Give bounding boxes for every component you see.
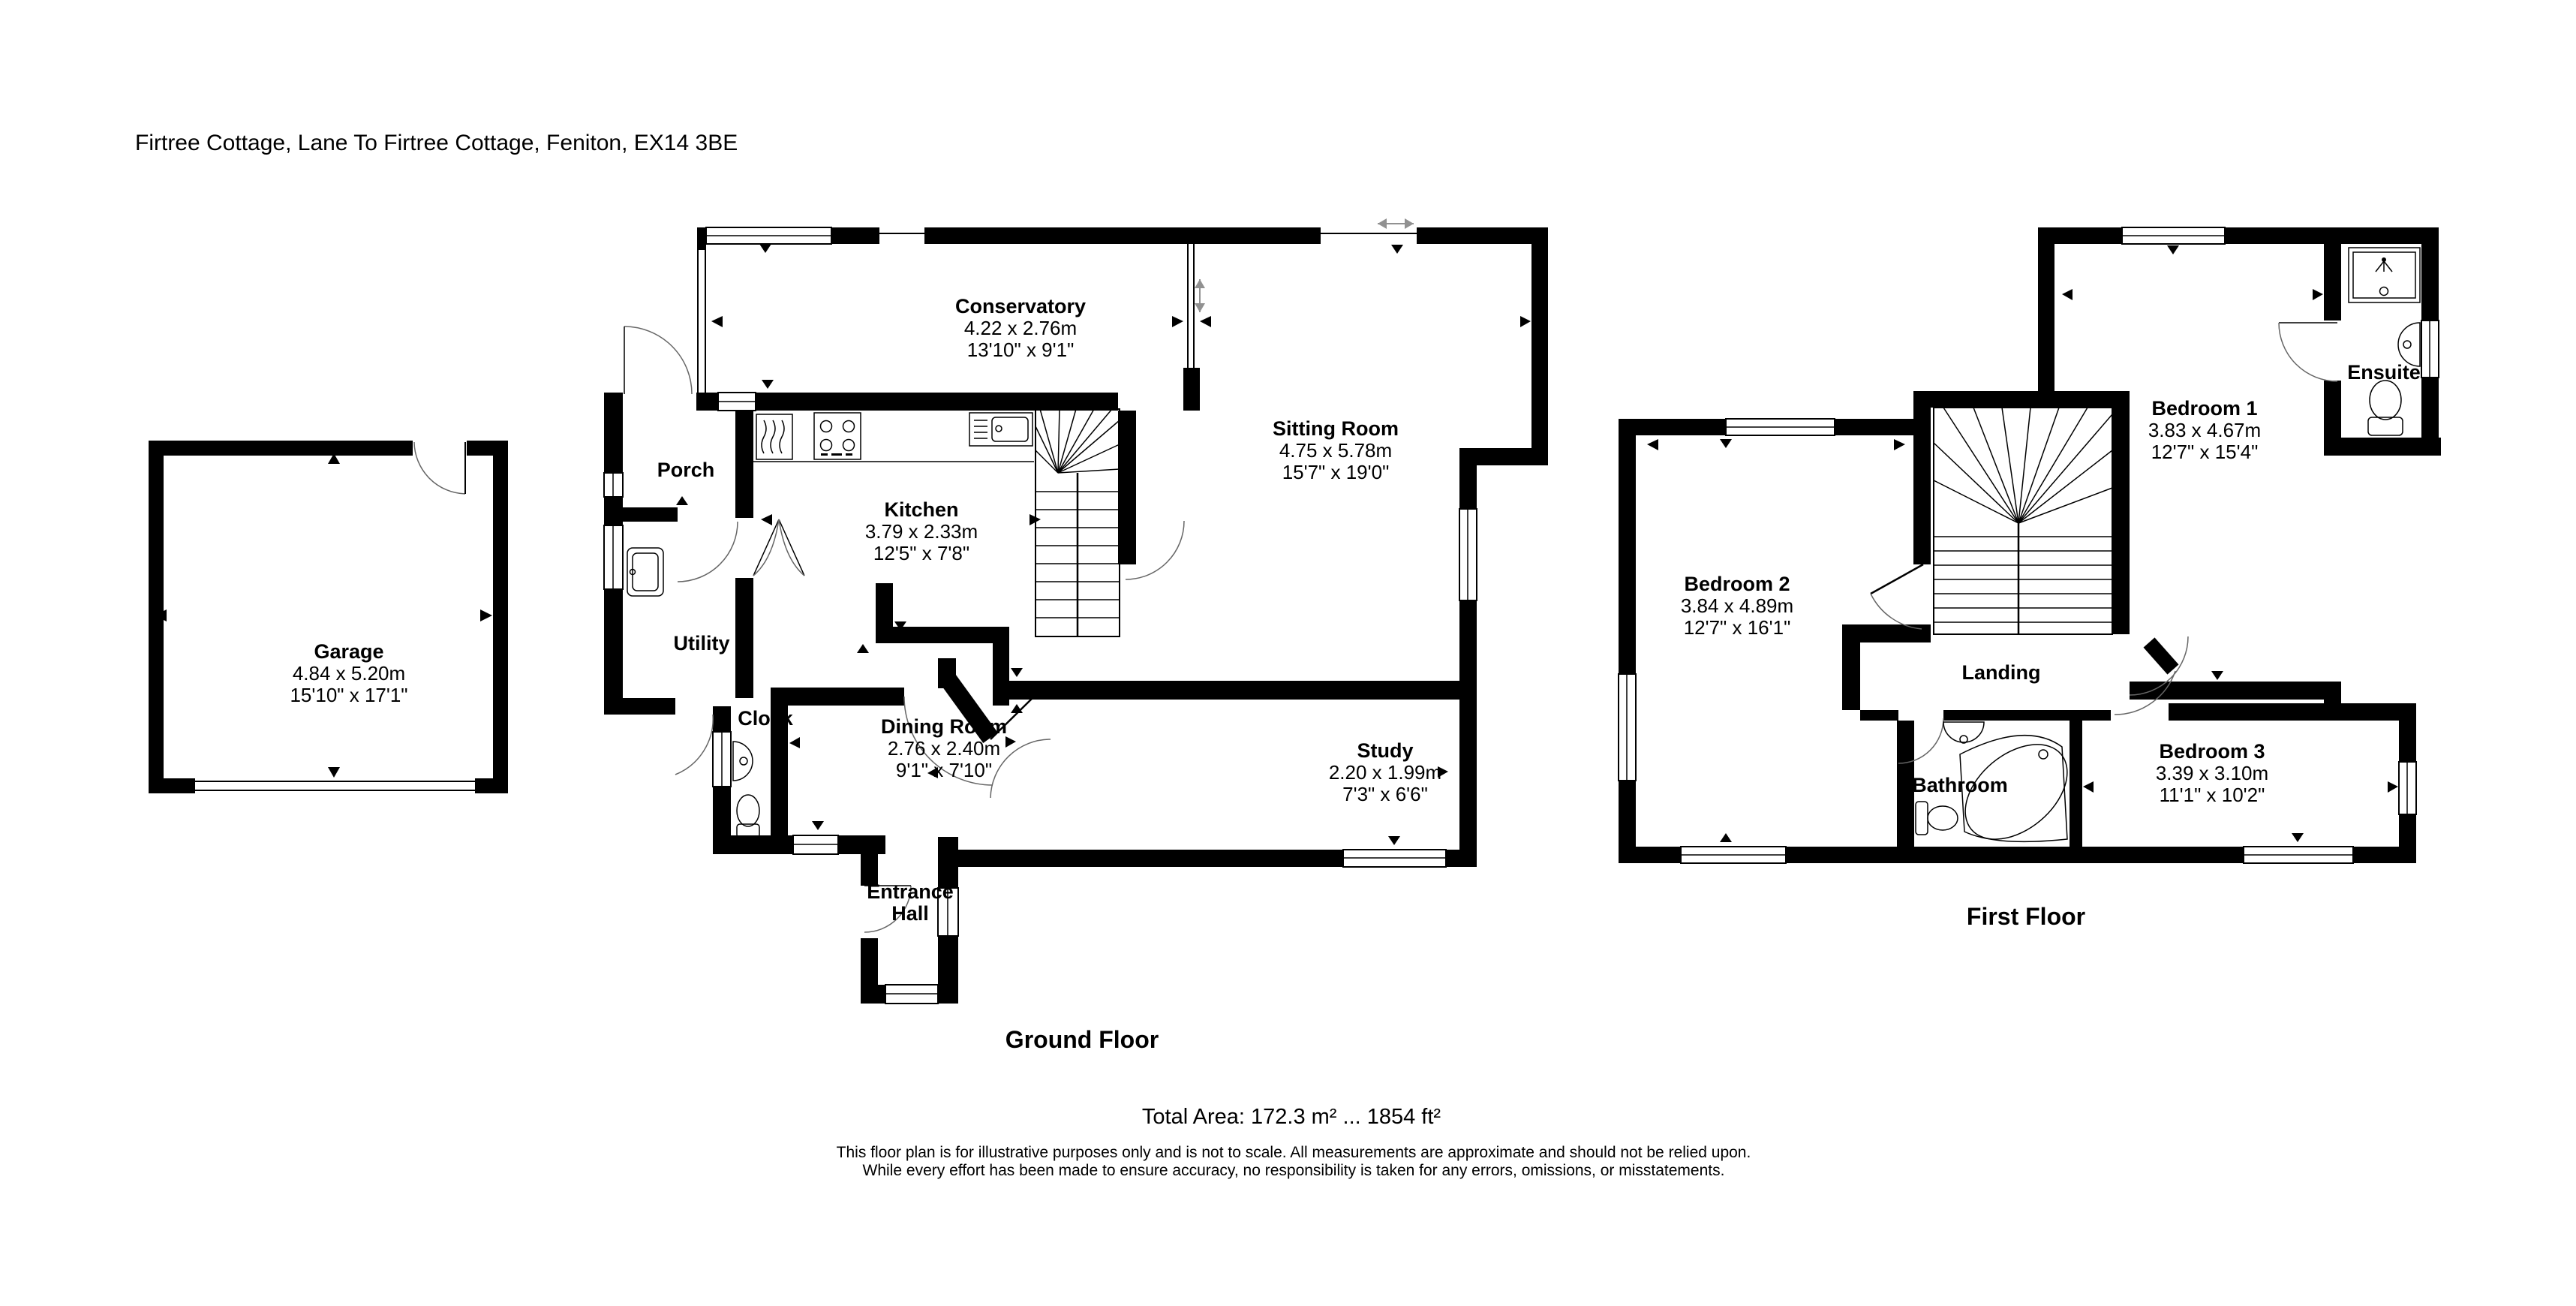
room-dim-metric: 4.84 x 5.20m [293,662,405,685]
landing-label: Landing [1962,661,2041,684]
room-dim-metric: 3.84 x 4.89m [1681,594,1793,617]
room-name: Bedroom 1 [2151,397,2257,420]
ensuite-sink-icon [2398,323,2420,366]
ensuite-toilet-icon [2368,381,2403,435]
room-name: Dining Room [881,715,1007,738]
window [706,227,831,244]
conservatory-glazing [698,233,1194,393]
window [713,732,731,787]
disclaimer-line1: This floor plan is for illustrative purp… [837,1144,1751,1161]
garage-walls [149,441,508,793]
room-name: Bedroom 2 [1684,573,1790,595]
window [885,985,938,1004]
stair-winders [1934,408,2112,523]
utility-cloak-door-arc [675,715,713,775]
room-dim-imperial: 13'10" x 9'1" [967,339,1075,361]
room-dim-metric: 2.76 x 2.40m [888,737,1000,760]
bedroom3-label: Bedroom 3 3.39 x 3.10m 11'1" x 10'2" [2156,740,2268,806]
cloak-toilet-icon [737,795,759,838]
bedroom2-label: Bedroom 2 3.84 x 4.89m 12'7" x 16'1" [1681,573,1793,639]
hob-icon [814,413,861,459]
room-dim-imperial: 9'1" x 7'10" [896,759,992,781]
garage-dim-arrows [155,453,492,778]
window [1681,847,1786,863]
conservatory-label: Conservatory 4.22 x 2.76m 13'10" x 9'1" [955,295,1086,361]
ensuite-door [2279,323,2337,381]
utility-sink-icon [627,548,663,596]
ground-floor-title: Ground Floor [1005,1026,1159,1053]
room-dim-metric: 4.22 x 2.76m [964,317,1077,339]
window [1459,509,1477,600]
sitting-room-label: Sitting Room 4.75 x 5.78m 15'7" x 19'0" [1273,417,1399,483]
porch-label: Porch [657,459,715,481]
window [1726,419,1835,435]
room-name-line1: Entrance [867,880,954,903]
oven-icon [756,414,792,459]
floorplan-canvas: Firtree Cottage, Lane To Firtree Cottage… [0,0,2576,1306]
room-dim-imperial: 15'7" x 19'0" [1282,461,1390,483]
bedroom2-door [1871,564,1923,629]
garage-door-arc [414,442,465,494]
first-floor-stairs [1934,408,2112,634]
stair-treads [1036,473,1120,636]
room-dim-imperial: 12'5" x 7'8" [873,542,969,564]
first-floor-dim-arrows [1647,245,2398,842]
bedroom3-door [2115,642,2175,715]
porch-utility-door-arc [678,522,738,582]
total-area: Total Area: 172.3 m² ... 1854 ft² [1142,1105,1441,1129]
room-dim-imperial: 12'7" x 15'4" [2151,441,2259,463]
window [793,835,838,854]
window [2421,320,2439,378]
room-name: Sitting Room [1273,417,1399,440]
room-name: Garage [314,640,383,663]
opening-width-arrow [1378,218,1414,229]
porch-entry-door-arc [624,326,692,394]
room-name: Conservatory [955,295,1086,317]
cloak-sink-icon [733,742,753,781]
ground-floor-walls [604,227,1548,1004]
room-dim-metric: 2.20 x 1.99m [1329,761,1441,784]
cloak-label: Cloak [738,707,794,730]
window [2399,762,2416,814]
room-dim-metric: 4.75 x 5.78m [1279,439,1392,462]
window [2244,847,2353,863]
ground-floor-stairs [1036,409,1120,636]
ensuite-label: Ensuite [2347,361,2421,384]
stair-winders [1036,409,1120,473]
room-name: Bedroom 3 [2159,740,2265,763]
study-label: Study 2.20 x 1.99m 7'3" x 6'6" [1329,739,1441,805]
room-dim-imperial: 15'10" x 17'1" [290,684,407,706]
bathroom-sink-icon [1943,722,1984,743]
room-dim-metric: 3.83 x 4.67m [2148,419,2261,441]
first-floor-title: First Floor [1967,903,2085,930]
dining-room-label: Dining Room 2.76 x 2.40m 9'1" x 7'10" [881,715,1007,781]
bathroom-toilet-icon [1916,802,1958,835]
shower-icon [2349,248,2420,302]
window [1343,850,1446,867]
bedroom1-label: Bedroom 1 3.83 x 4.67m 12'7" x 15'4" [2148,397,2261,463]
room-dim-imperial: 11'1" x 10'2" [2160,784,2265,806]
window [718,393,756,411]
room-dim-imperial: 7'3" x 6'6" [1342,783,1428,805]
window [604,525,623,589]
window [604,473,623,497]
disclaimer-line2: While every effort has been made to ensu… [863,1162,1725,1179]
room-name-line2: Hall [891,902,929,925]
opening-height-arrow [1195,279,1205,312]
utility-kitchen-double-door [753,519,804,576]
room-name: Study [1357,739,1413,762]
room-dim-imperial: 12'7" x 16'1" [1684,616,1791,639]
bathroom-label: Bathroom [1912,774,2008,796]
kitchen-label: Kitchen 3.79 x 2.33m 12'5" x 7'8" [865,498,978,564]
room-dim-metric: 3.79 x 2.33m [865,520,978,543]
utility-label: Utility [673,632,729,655]
kitchen-sink-icon [969,413,1033,446]
page-title: Firtree Cottage, Lane To Firtree Cottage… [135,131,738,155]
stair-treads [1934,523,2112,634]
window [1619,674,1636,781]
room-name: Kitchen [884,498,958,521]
window [2122,227,2225,244]
room-dim-metric: 3.39 x 3.10m [2156,762,2268,784]
garage-label: Garage 4.84 x 5.20m 15'10" x 17'1" [290,640,407,706]
